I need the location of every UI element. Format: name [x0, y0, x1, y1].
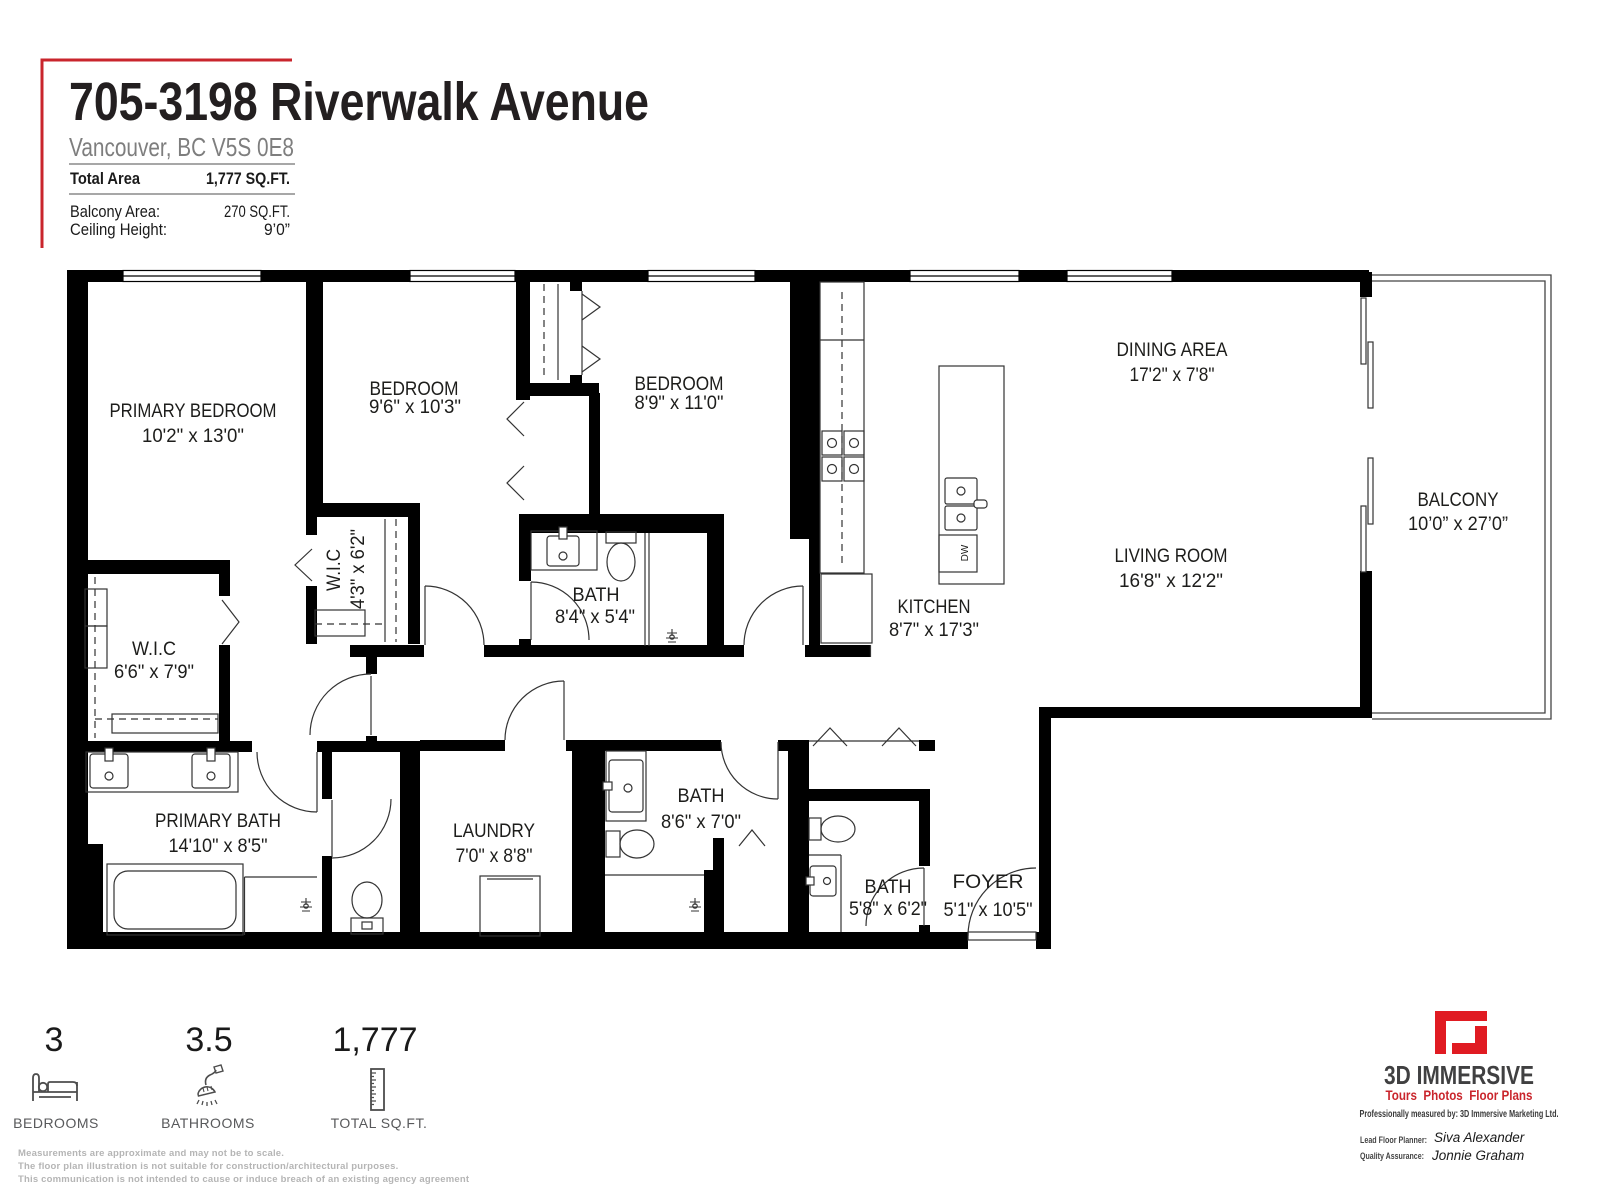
svg-text:16'8" x 12'2": 16'8" x 12'2"	[1119, 570, 1223, 592]
svg-text:6'6" x 7'9": 6'6" x 7'9"	[114, 661, 194, 683]
svg-text:Balcony Area:: Balcony Area:	[70, 203, 160, 221]
svg-text:Quality Assurance:: Quality Assurance:	[1360, 1151, 1424, 1162]
svg-text:LAUNDRY: LAUNDRY	[453, 820, 535, 842]
svg-text:5'1" x 10'5": 5'1" x 10'5"	[944, 899, 1033, 921]
svg-text:270 SQ.FT.: 270 SQ.FT.	[224, 203, 290, 221]
svg-text:BATH: BATH	[678, 785, 725, 807]
svg-text:3.5: 3.5	[185, 1021, 232, 1059]
svg-text:705-3198 Riverwalk Avenue: 705-3198 Riverwalk Avenue	[69, 72, 649, 132]
svg-text:This communication is not inte: This communication is not intended to ca…	[18, 1174, 470, 1185]
svg-text:LIVING ROOM: LIVING ROOM	[1115, 545, 1228, 567]
svg-text:BATH: BATH	[573, 584, 620, 606]
svg-text:DW: DW	[960, 544, 971, 561]
svg-text:1,777 SQ.FT.: 1,777 SQ.FT.	[206, 170, 290, 188]
svg-text:TOTAL SQ.FT.: TOTAL SQ.FT.	[331, 1115, 428, 1131]
svg-text:Professionally measured by: 3D: Professionally measured by: 3D Immersive…	[1360, 1109, 1559, 1120]
svg-text:Vancouver, BC V5S 0E8: Vancouver, BC V5S 0E8	[69, 132, 294, 162]
svg-text:10'2" x 13'0": 10'2" x 13'0"	[142, 425, 244, 447]
svg-text:8'4" x 5'4": 8'4" x 5'4"	[555, 606, 635, 628]
svg-text:Lead Floor Planner:: Lead Floor Planner:	[1360, 1135, 1427, 1146]
svg-text:KITCHEN: KITCHEN	[898, 596, 971, 618]
svg-text:Total Area: Total Area	[70, 170, 141, 188]
svg-text:5'8" x 6'2": 5'8" x 6'2"	[849, 898, 927, 920]
svg-text:1,777: 1,777	[332, 1021, 417, 1059]
svg-text:9’0”: 9’0”	[264, 221, 290, 239]
svg-text:8'9" x 11'0": 8'9" x 11'0"	[635, 392, 724, 414]
svg-text:8'6" x 7'0": 8'6" x 7'0"	[661, 811, 741, 833]
svg-text:Tours Photos Floor Plans: Tours Photos Floor Plans	[1386, 1087, 1533, 1103]
svg-text:4'3" x 6'2": 4'3" x 6'2"	[347, 529, 369, 609]
svg-text:3D IMMERSIVE: 3D IMMERSIVE	[1384, 1060, 1534, 1090]
svg-text:8'7" x 17'3": 8'7" x 17'3"	[889, 619, 979, 641]
svg-text:Ceiling Height:: Ceiling Height:	[70, 221, 167, 239]
svg-text:The floor plan illustration is: The floor plan illustration is not suita…	[18, 1161, 398, 1172]
svg-text:FOYER: FOYER	[953, 871, 1024, 893]
svg-text:PRIMARY BATH: PRIMARY BATH	[155, 810, 281, 832]
svg-text:14'10" x 8'5": 14'10" x 8'5"	[169, 835, 268, 857]
svg-text:Siva Alexander: Siva Alexander	[1434, 1130, 1525, 1145]
svg-text:3: 3	[45, 1021, 64, 1059]
svg-text:7'0" x 8'8": 7'0" x 8'8"	[456, 845, 533, 867]
svg-text:Measurements are approximate a: Measurements are approximate and may not…	[18, 1148, 284, 1159]
svg-text:BALCONY: BALCONY	[1418, 489, 1499, 511]
svg-text:BEDROOMS: BEDROOMS	[13, 1115, 99, 1131]
svg-text:10’0” x 27’0”: 10’0” x 27’0”	[1408, 513, 1508, 535]
svg-text:DINING AREA: DINING AREA	[1117, 339, 1228, 361]
svg-text:17'2" x 7'8": 17'2" x 7'8"	[1130, 364, 1215, 386]
svg-text:BATHROOMS: BATHROOMS	[161, 1115, 255, 1131]
svg-text:9'6" x 10'3": 9'6" x 10'3"	[369, 396, 461, 418]
svg-text:BATH: BATH	[865, 876, 912, 898]
svg-text:W.I.C: W.I.C	[323, 549, 345, 591]
svg-text:Jonnie Graham: Jonnie Graham	[1431, 1148, 1524, 1163]
svg-text:PRIMARY BEDROOM: PRIMARY BEDROOM	[110, 400, 277, 422]
svg-text:W.I.C: W.I.C	[132, 638, 176, 660]
